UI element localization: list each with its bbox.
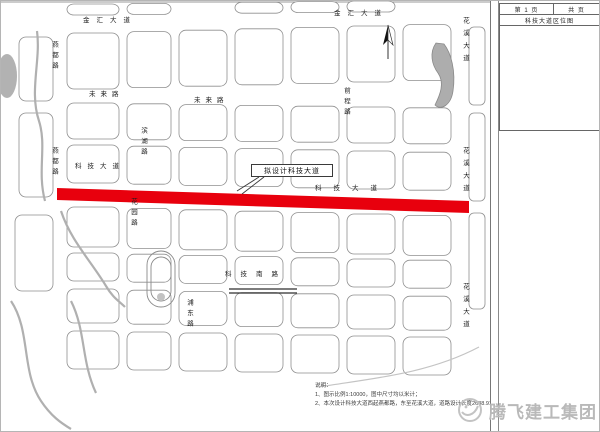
street-label: 科技大道 <box>75 164 125 171</box>
total-pages-cell: 共 页 <box>554 4 599 14</box>
drawing-sheet: 金汇大道金汇大道未来路未来路科技大道科技大道科技南路花溪大道花溪大道花溪大道燕都… <box>0 0 600 432</box>
street-label: 科技南路 <box>225 272 287 279</box>
title-row-page: 第 1 页 共 页 <box>500 4 599 15</box>
map-area: 金汇大道金汇大道未来路未来路科技大道科技大道科技南路花溪大道花溪大道花溪大道燕都… <box>1 1 490 432</box>
title-empty-cell <box>500 26 599 130</box>
street-label: 燕都路 <box>50 41 57 73</box>
street-label: 金汇大道 <box>334 11 388 18</box>
title-block-table: 第 1 页 共 页 科技大道区位图 <box>499 3 600 131</box>
title-row-name: 科技大道区位图 <box>500 15 599 26</box>
company-logo-icon <box>455 395 485 425</box>
street-label: 浦东路 <box>185 299 192 331</box>
street-label: 花溪大道 <box>461 283 468 333</box>
company-name: 腾飞建工集团 <box>489 398 597 423</box>
notes-heading: 说明： <box>315 382 495 391</box>
title-block-column: 第 1 页 共 页 科技大道区位图 <box>490 1 600 432</box>
street-label: 金汇大道 <box>83 18 137 25</box>
city-blocks <box>67 1 451 375</box>
street-label: 花溪大道 <box>461 147 468 197</box>
railway-lines <box>229 289 297 293</box>
street-label: 燕都路 <box>50 147 57 179</box>
pond-shape <box>1 54 17 98</box>
proposed-road-callout: 拟设计科技大道 <box>251 164 333 177</box>
street-label: 花溪大道 <box>461 17 468 67</box>
street-label: 未来路 <box>194 98 229 105</box>
street-label: 滨湖路 <box>139 127 146 159</box>
company-watermark: 腾飞建工集团 <box>455 395 597 425</box>
proposed-road <box>57 188 469 213</box>
street-label: 花园路 <box>129 198 136 230</box>
street-label: 科技大道 <box>315 186 389 193</box>
page-number-cell: 第 1 页 <box>500 4 554 14</box>
map-canvas <box>1 1 490 432</box>
street-label: 未来路 <box>89 92 124 99</box>
drawing-title-cell: 科技大道区位图 <box>500 15 599 25</box>
street-label: 前程路 <box>342 87 349 119</box>
